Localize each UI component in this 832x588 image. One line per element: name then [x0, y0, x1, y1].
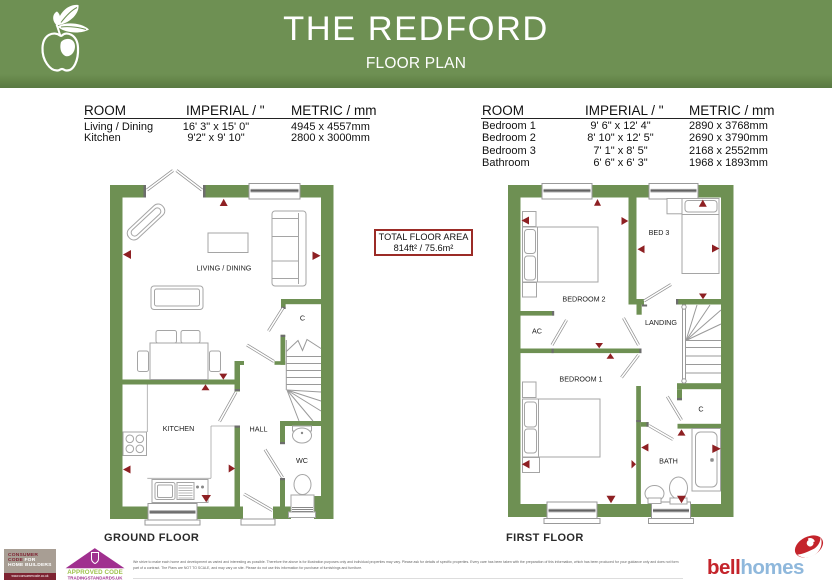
svg-text:KITCHEN: KITCHEN: [163, 424, 195, 433]
svg-text:BEDROOM 2: BEDROOM 2: [562, 295, 605, 304]
svg-text:LANDING: LANDING: [645, 318, 677, 327]
svg-text:BED 3: BED 3: [649, 228, 670, 237]
svg-text:BATH: BATH: [659, 457, 678, 466]
svg-text:TRADINGSTANDARDS.UK: TRADINGSTANDARDS.UK: [68, 575, 124, 580]
svg-text:HALL: HALL: [250, 425, 268, 434]
svg-text:C: C: [300, 314, 305, 323]
svg-text:BEDROOM 1: BEDROOM 1: [559, 375, 602, 384]
svg-text:WC: WC: [296, 456, 308, 465]
svg-text:AC: AC: [532, 327, 542, 336]
svg-text:C: C: [698, 405, 703, 414]
svg-text:LIVING / DINING: LIVING / DINING: [197, 264, 252, 273]
